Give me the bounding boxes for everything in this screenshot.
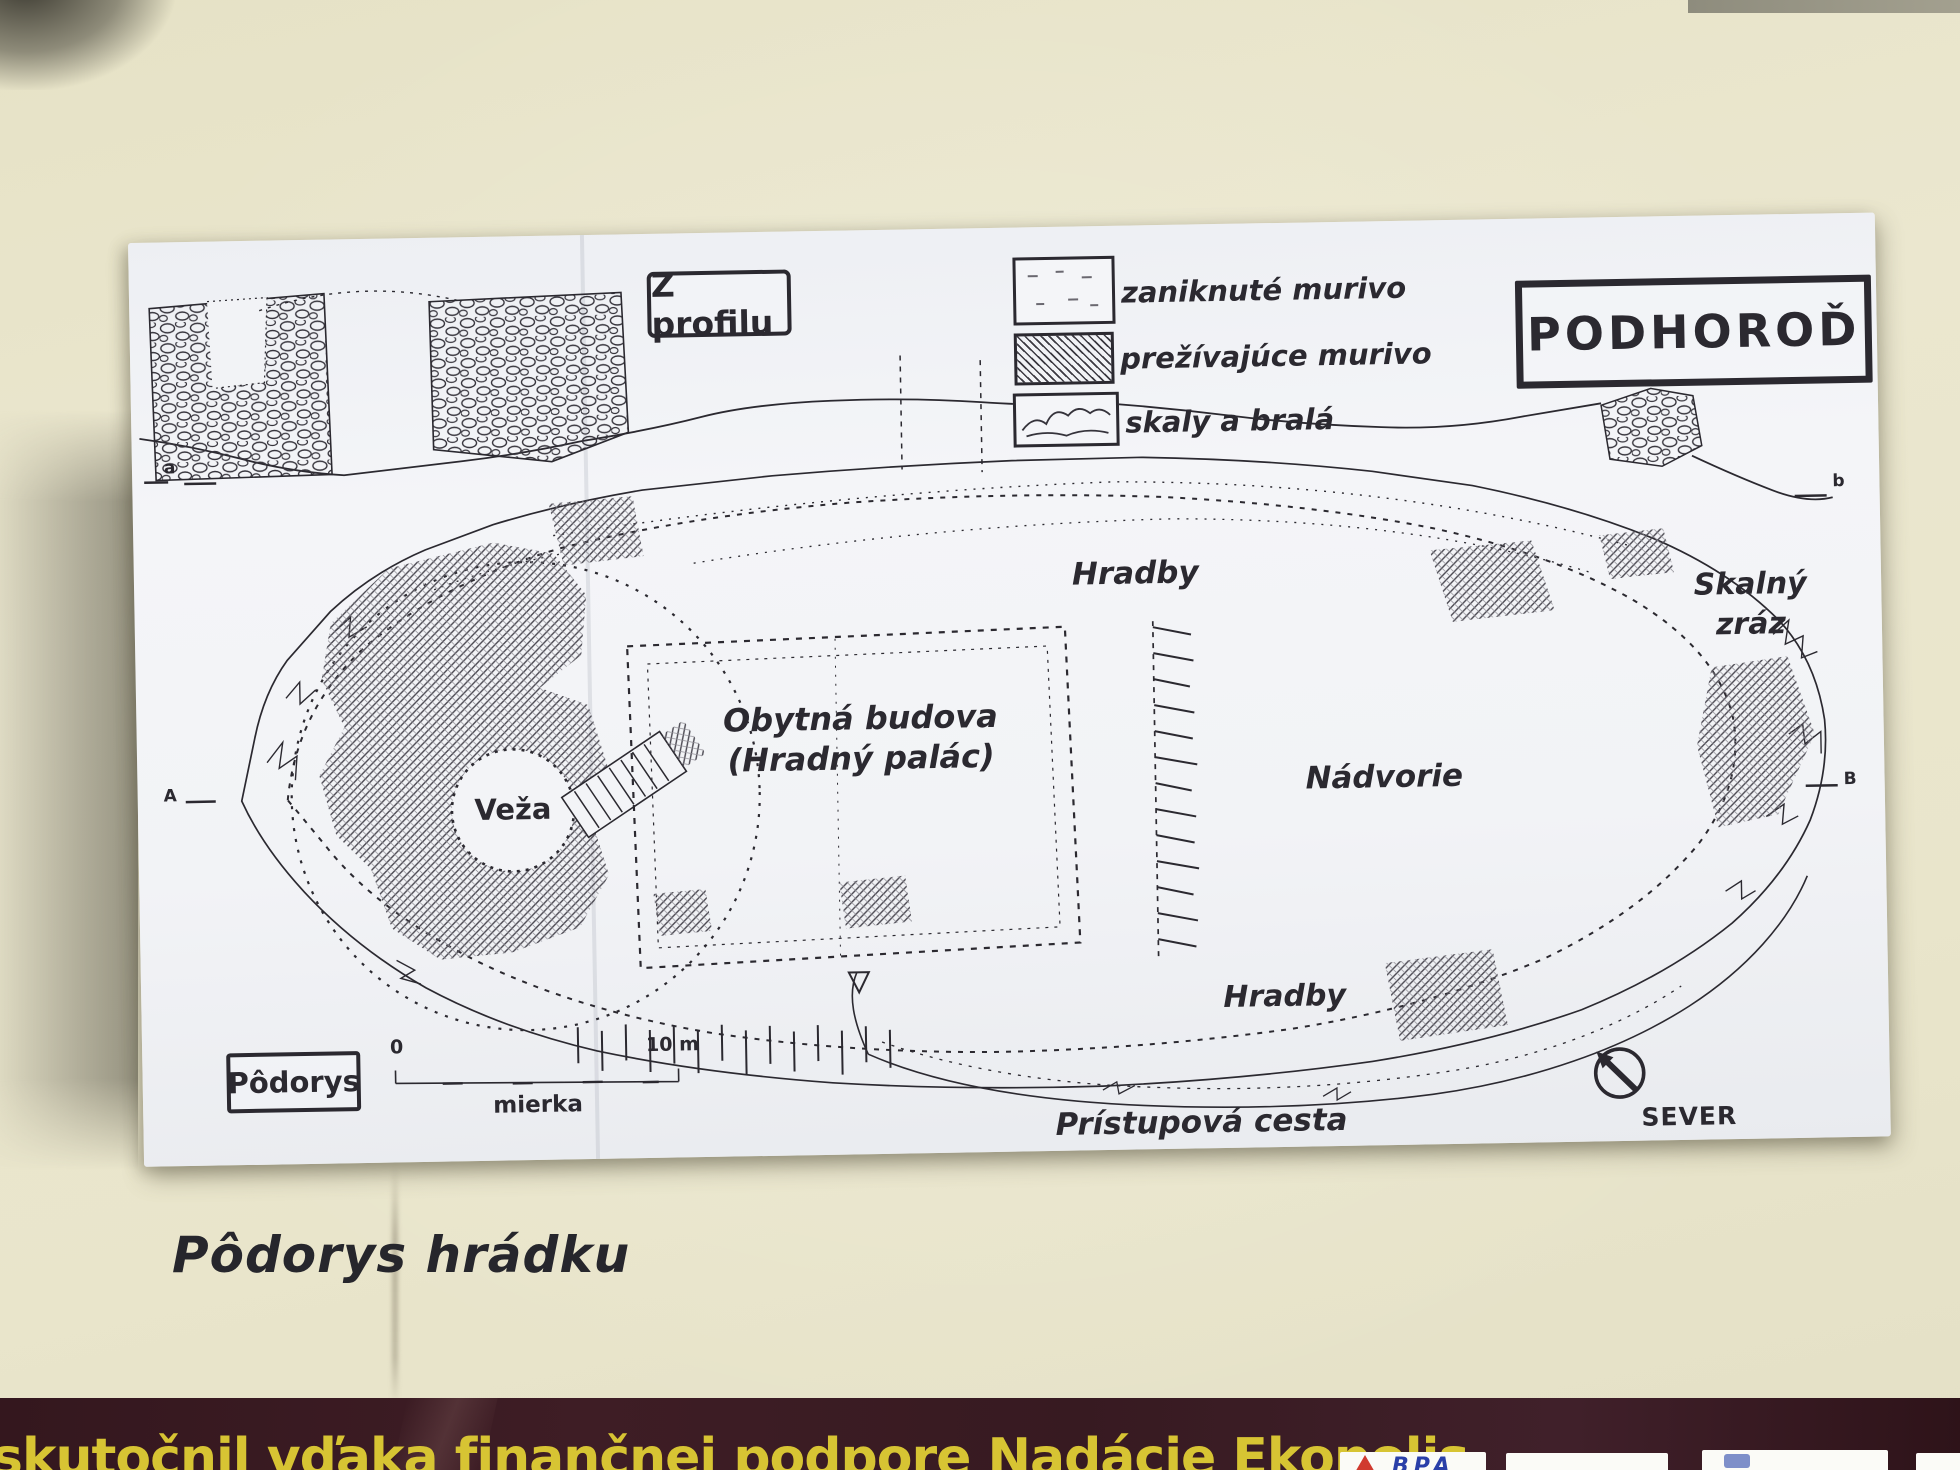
north-arrow-icon <box>1595 1049 1644 1098</box>
scale-label: mierka <box>478 1091 598 1119</box>
cliff-line2: zráz <box>1671 603 1832 646</box>
photo-corner-shadow <box>0 0 175 90</box>
cliff-line1: Skalný <box>1670 563 1831 606</box>
left-edge-shadow <box>0 410 138 1170</box>
logo-box-4 <box>1916 1453 1960 1470</box>
label-access-road: Prístupová cesta <box>1055 1102 1348 1143</box>
legend-symbol-surviving-masonry <box>1014 332 1115 386</box>
sign-frame-edge <box>1688 0 1960 13</box>
label-rocky-cliff: Skalný zráz <box>1670 563 1831 646</box>
scale-end: 10 m <box>646 1033 699 1056</box>
rocks-icon <box>1016 395 1117 445</box>
logo-3-mark <box>1724 1454 1750 1468</box>
label-north: SEVER <box>1641 1101 1737 1132</box>
label-residential-building: Obytná budova (Hradný palác) <box>692 695 1029 781</box>
castle-plan-sheet: Z profilu zaniknuté murivo prežívajúce m… <box>128 213 1891 1167</box>
residential-line1: Obytná budova <box>692 695 1029 741</box>
residential-line2: (Hradný palác) <box>693 735 1030 781</box>
logo-bpa-text: BPA <box>1392 1454 1455 1470</box>
legend-symbol-vanished-masonry <box>1012 256 1115 326</box>
logo-box-3 <box>1702 1450 1888 1470</box>
sheet-caption: Pôdorys hrádku <box>172 1226 630 1284</box>
legend-label-rocks: skaly a bralá <box>1125 402 1334 440</box>
section-marker-A: A <box>163 786 177 806</box>
castle-name: PODHOROĎ <box>1527 302 1861 362</box>
section-marker-B: B <box>1843 769 1856 789</box>
legend-symbol-rocks <box>1013 392 1120 448</box>
plan-view-label-box: Pôdorys <box>226 1051 361 1113</box>
footer-band: skutočnil vďaka finančnej podpore Nadáci… <box>0 1398 1960 1470</box>
label-courtyard: Nádvorie <box>1305 758 1463 797</box>
sign-crease <box>392 1165 398 1405</box>
scale-start: 0 <box>390 1036 404 1058</box>
label-ramparts-top: Hradby <box>1072 554 1199 592</box>
plan-section <box>180 445 1843 1125</box>
section-marker-b: b <box>1832 471 1845 491</box>
castle-name-box: PODHOROĎ <box>1515 275 1873 389</box>
photo-of-information-sign: Z profilu zaniknuté murivo prežívajúce m… <box>0 0 1960 1470</box>
profile-view-label: Z profilu <box>650 264 787 344</box>
section-marker-a: a <box>164 458 176 478</box>
profile-view-label-box: Z profilu <box>647 269 792 338</box>
footer-credit-text: skutočnil vďaka finančnej podpore Nadáci… <box>0 1428 1468 1470</box>
plan-view-label: Pôdorys <box>227 1064 360 1100</box>
legend-label-surviving: prežívajúce murivo <box>1120 336 1432 375</box>
bpa-triangle-icon <box>1354 1455 1376 1470</box>
label-tower: Veža <box>451 791 576 827</box>
logo-bpa-box: BPA <box>1340 1452 1486 1470</box>
vanished-masonry-icon <box>1015 259 1112 323</box>
logo-box-2 <box>1506 1453 1668 1470</box>
label-ramparts-bottom: Hradby <box>1223 978 1346 1015</box>
legend-label-vanished: zaniknuté murivo <box>1121 271 1407 310</box>
